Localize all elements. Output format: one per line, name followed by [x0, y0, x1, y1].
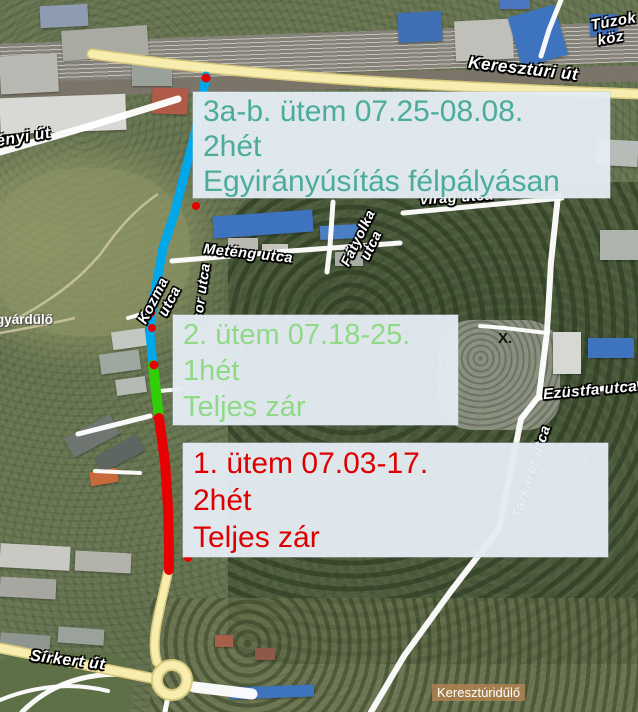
phase-title: 1. ütem 07.03-17.	[193, 445, 608, 482]
route-phase2-closure	[153, 365, 159, 418]
area-label-gyardulo: gyárdűlő	[0, 312, 53, 327]
phase-restriction: Teljes zár	[193, 519, 608, 556]
phase-title: 2. ütem 07.18-25.	[183, 317, 458, 353]
phase-title: 3a-b. ütem 07.25-08.08.	[203, 94, 610, 129]
map-canvas: Keresztúri út Túzok köz ényi út Kozma ut…	[0, 0, 638, 712]
info-box-phase-2: 2. ütem 07.18-25. 1hét Teljes zár	[173, 315, 458, 425]
info-box-phase-3ab: 3a-b. ütem 07.25-08.08. 2hét Egyirányúsí…	[193, 92, 610, 198]
road-tuzok-koz	[541, 0, 561, 56]
phase-duration: 2hét	[203, 129, 610, 164]
info-box-phase-1: 1. ütem 07.03-17. 2hét Teljes zár	[183, 443, 608, 557]
phase-restriction: Teljes zár	[183, 389, 458, 425]
phase-restriction: Egyirányúsítás félpályásan	[203, 164, 610, 199]
district-label-x: X.	[498, 330, 512, 347]
phase-duration: 1hét	[183, 353, 458, 389]
road-fatyolka-utca	[327, 202, 333, 272]
phase-duration: 2hét	[193, 482, 608, 519]
area-label-kereszturidulo: Keresztúridűlő	[432, 684, 525, 701]
route-phase1-closure	[159, 418, 169, 570]
